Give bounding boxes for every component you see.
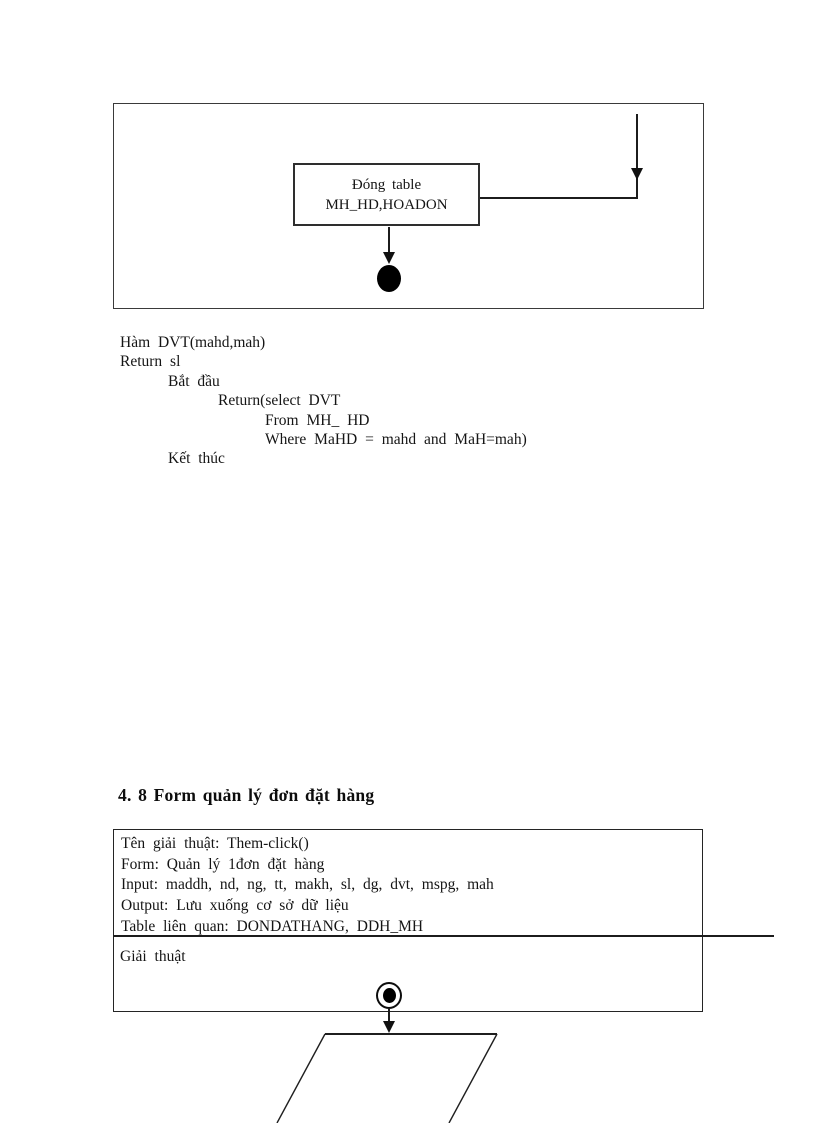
code-line: Hàm DVT(mahd,mah) — [120, 333, 527, 352]
start-node-icon — [376, 982, 402, 1009]
process-box-line1: Đóng table — [352, 175, 421, 195]
process-box-line2: MH_HD,HOADON — [325, 195, 447, 215]
spec-row-input: Input: maddh, nd, ng, tt, makh, sl, dg, … — [121, 875, 698, 896]
connector-line-vertical — [636, 114, 638, 199]
spec-table: Tên giải thuật: Them-click() Form: Quản … — [113, 829, 703, 1012]
arrow-down-icon — [631, 168, 643, 180]
arrow-down-icon — [383, 252, 395, 264]
connector-line-horizontal — [480, 197, 638, 199]
table-divider-line — [113, 935, 774, 937]
section-heading: 4. 8 Form quản lý đơn đặt hàng — [118, 783, 374, 807]
code-line: Where MaHD = mahd and MaH=mah) — [120, 430, 527, 449]
start-node-dot — [383, 988, 396, 1003]
document-page: Đóng table MH_HD,HOADON Hàm DVT(mahd,mah… — [0, 0, 816, 1123]
spec-row-form: Form: Quản lý 1đơn đặt hàng — [121, 855, 698, 876]
end-node-icon — [377, 265, 401, 292]
spec-table-info: Tên giải thuật: Them-click() Form: Quản … — [121, 834, 698, 938]
code-line: Bắt đầu — [120, 372, 527, 391]
code-line: Return sl — [120, 352, 527, 371]
code-line: Return(select DVT — [120, 391, 527, 410]
code-line: Kết thúc — [120, 449, 527, 468]
arrow-line-to-end — [388, 227, 390, 254]
spec-row-output: Output: Lưu xuống cơ sở dữ liệu — [121, 896, 698, 917]
code-line: From MH_ HD — [120, 411, 527, 430]
algorithm-label: Giải thuật — [120, 948, 186, 966]
spec-row-name: Tên giải thuật: Them-click() — [121, 834, 698, 855]
process-box-dong-table: Đóng table MH_HD,HOADON — [293, 163, 480, 226]
code-block: Hàm DVT(mahd,mah) Return sl Bắt đầu Retu… — [120, 333, 527, 469]
io-parallelogram — [250, 1030, 550, 1123]
